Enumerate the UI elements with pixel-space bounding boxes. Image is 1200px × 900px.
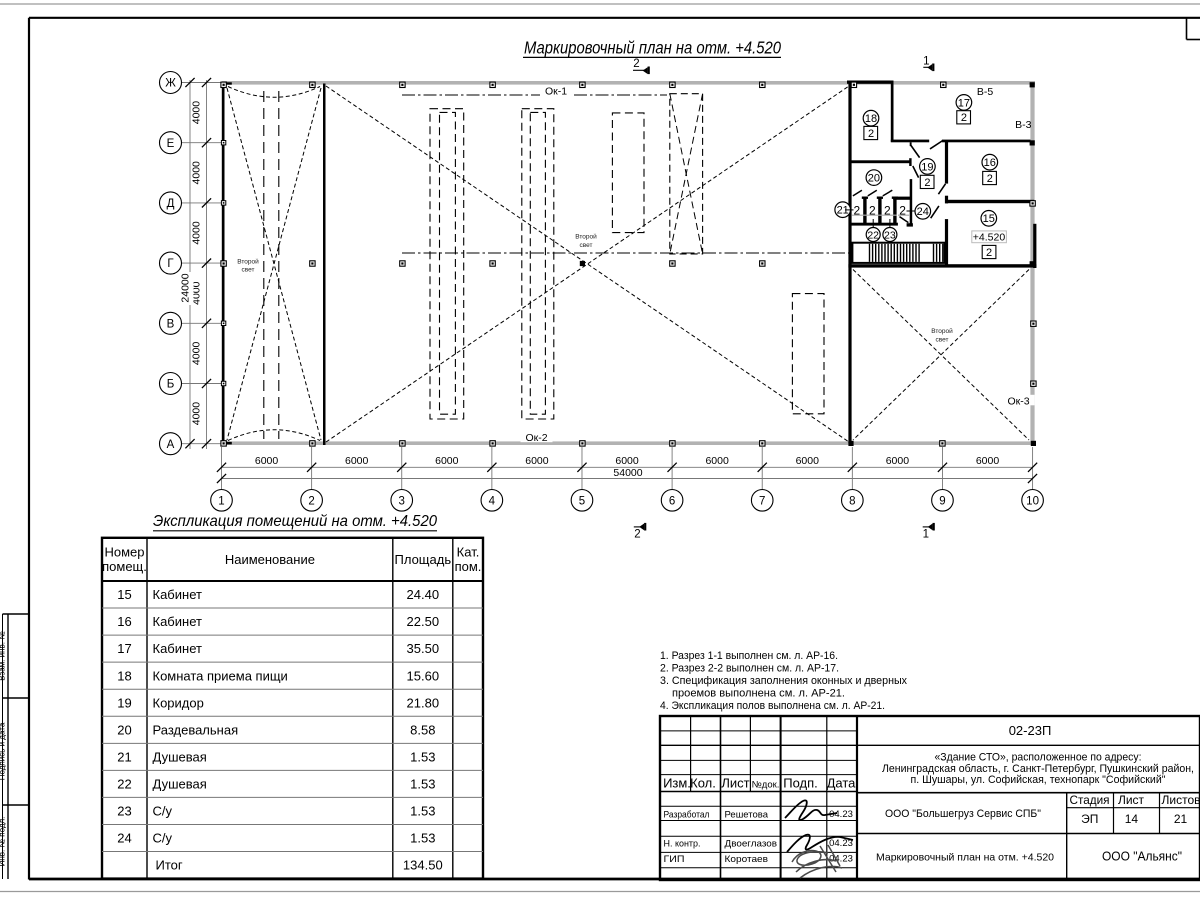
svg-text:15.60: 15.60 (407, 668, 440, 683)
svg-text:4000: 4000 (191, 161, 203, 185)
svg-text:+4.520: +4.520 (973, 231, 1006, 243)
svg-text:Раздевальная: Раздевальная (153, 722, 239, 737)
svg-text:9: 9 (939, 495, 945, 507)
svg-text:Листов: Листов (1162, 793, 1200, 807)
svg-text:свет: свет (579, 242, 592, 249)
svg-text:1. Разрез 1-1 выполнен см. л.: 1. Разрез 1-1 выполнен см. л. АР-16. (660, 650, 838, 662)
svg-text:Коротаев: Коротаев (725, 854, 769, 865)
svg-text:В: В (167, 318, 175, 330)
svg-text:Ок-3: Ок-3 (1007, 396, 1029, 408)
svg-text:4000: 4000 (191, 402, 203, 426)
svg-text:Стадия: Стадия (1070, 793, 1110, 807)
svg-text:Кабинет: Кабинет (153, 587, 202, 602)
svg-text:Дата: Дата (827, 776, 857, 791)
svg-text:2: 2 (634, 528, 640, 540)
svg-text:ООО "Большегруз Сервис СПБ": ООО "Большегруз Сервис СПБ" (885, 808, 1041, 820)
svg-text:Кат.: Кат. (457, 544, 480, 559)
svg-text:Наименование: Наименование (225, 552, 315, 567)
svg-text:2: 2 (868, 128, 874, 140)
svg-text:Душевая: Душевая (153, 749, 207, 764)
svg-text:Второй: Второй (575, 233, 597, 241)
svg-text:24: 24 (117, 831, 131, 846)
svg-text:ООО "Альянс": ООО "Альянс" (1102, 850, 1182, 864)
svg-text:Подпись и дата: Подпись и дата (0, 722, 7, 780)
svg-text:02-23П: 02-23П (1009, 723, 1052, 738)
svg-text:6000: 6000 (615, 455, 639, 467)
svg-text:1: 1 (923, 528, 929, 540)
svg-text:20: 20 (868, 173, 880, 185)
svg-text:20: 20 (117, 722, 131, 737)
svg-text:2: 2 (924, 177, 930, 189)
svg-text:1: 1 (923, 56, 929, 68)
svg-text:6000: 6000 (525, 455, 549, 467)
svg-text:Инв. № подл.: Инв. № подл. (0, 817, 7, 867)
svg-text:6000: 6000 (976, 455, 1000, 467)
svg-text:Подп.: Подп. (783, 776, 818, 791)
svg-text:22.50: 22.50 (407, 614, 440, 629)
svg-text:8.58: 8.58 (410, 722, 435, 737)
svg-text:2: 2 (961, 112, 967, 124)
svg-text:Коридор: Коридор (153, 695, 204, 710)
svg-text:Е: Е (167, 138, 175, 150)
svg-text:6000: 6000 (796, 455, 820, 467)
svg-text:6000: 6000 (705, 455, 729, 467)
svg-text:23: 23 (117, 804, 131, 819)
svg-text:16: 16 (984, 157, 996, 169)
svg-text:4. Экспликация полов выполнена: 4. Экспликация полов выполнена см. л. АР… (660, 700, 885, 712)
svg-text:Ленинградская область, г. Санк: Ленинградская область, г. Санкт-Петербур… (882, 763, 1194, 775)
svg-text:17: 17 (958, 97, 970, 109)
svg-text:24000: 24000 (180, 273, 192, 302)
svg-text:54000: 54000 (613, 467, 642, 479)
svg-text:Лист: Лист (721, 776, 749, 791)
svg-text:15: 15 (983, 213, 995, 225)
svg-text:Маркировочный план на отм. +4.: Маркировочный план на отм. +4.520 (524, 38, 781, 58)
svg-text:С/у: С/у (153, 831, 173, 846)
svg-text:пом.: пом. (455, 559, 482, 574)
svg-text:23: 23 (884, 229, 896, 241)
svg-text:Д: Д (167, 198, 175, 210)
svg-text:1.53: 1.53 (410, 777, 435, 792)
svg-text:2: 2 (987, 173, 993, 185)
svg-text:п. Шушары, ул. Софийская, техн: п. Шушары, ул. Софийская, технопарк "Соф… (911, 774, 1166, 786)
svg-text:1.53: 1.53 (410, 804, 435, 819)
svg-text:Двоеглазов: Двоеглазов (725, 839, 778, 850)
svg-text:ГИП: ГИП (664, 854, 685, 865)
svg-text:Маркировочный план на отм. +4.: Маркировочный план на отм. +4.520 (876, 852, 1054, 864)
svg-text:2: 2 (884, 203, 891, 217)
svg-text:2. Разрез 2-2 выполнен см. л.: 2. Разрез 2-2 выполнен см. л. АР-17. (660, 663, 839, 675)
svg-text:21.80: 21.80 (407, 695, 440, 710)
svg-text:19: 19 (117, 695, 131, 710)
svg-text:21: 21 (837, 205, 849, 217)
svg-text:18: 18 (865, 113, 877, 125)
svg-text:2: 2 (633, 58, 639, 70)
svg-text:22: 22 (867, 229, 879, 241)
svg-text:Итог: Итог (156, 858, 183, 873)
svg-text:1.53: 1.53 (410, 749, 435, 764)
svg-text:35.50: 35.50 (407, 641, 440, 656)
svg-text:6000: 6000 (345, 455, 369, 467)
svg-text:Ок-2: Ок-2 (525, 432, 547, 444)
svg-text:Изм.: Изм. (663, 776, 691, 791)
svg-text:1: 1 (218, 495, 224, 507)
svg-text:15: 15 (117, 587, 131, 602)
svg-text:16: 16 (117, 614, 131, 629)
svg-text:6000: 6000 (886, 455, 910, 467)
svg-text:22: 22 (117, 777, 131, 792)
svg-text:4: 4 (489, 495, 496, 507)
svg-text:24.40: 24.40 (407, 587, 440, 602)
svg-text:17: 17 (117, 641, 131, 656)
svg-text:24: 24 (917, 206, 929, 218)
svg-text:2: 2 (308, 495, 314, 507)
svg-text:Кабинет: Кабинет (153, 614, 202, 629)
svg-text:3. Спецификация заполнения око: 3. Спецификация заполнения оконных и две… (660, 675, 907, 687)
svg-text:19: 19 (921, 161, 933, 173)
svg-text:Площадь: Площадь (395, 552, 452, 567)
svg-text:4000: 4000 (191, 221, 203, 245)
svg-text:Взам. инв. №: Взам. инв. № (0, 631, 7, 681)
svg-text:4000: 4000 (191, 342, 203, 366)
svg-text:5: 5 (579, 495, 585, 507)
svg-text:3: 3 (399, 495, 405, 507)
svg-text:свет: свет (935, 337, 948, 344)
svg-text:2: 2 (869, 203, 876, 217)
svg-text:Кол.: Кол. (690, 776, 716, 791)
svg-text:2: 2 (853, 203, 860, 217)
svg-text:Ок-1: Ок-1 (545, 86, 567, 98)
svg-text:2: 2 (899, 203, 906, 217)
svg-text:Второй: Второй (931, 327, 953, 335)
svg-text:«Здание СТО», расположенное по: «Здание СТО», расположенное по адресу: (935, 752, 1142, 764)
svg-text:А: А (167, 439, 175, 451)
svg-text:Второй: Второй (237, 258, 259, 266)
svg-text:6000: 6000 (435, 455, 459, 467)
svg-text:Душевая: Душевая (153, 777, 207, 792)
svg-text:21: 21 (117, 749, 131, 764)
svg-text:В-5: В-5 (977, 86, 994, 98)
svg-text:Номер: Номер (104, 544, 144, 559)
svg-text:10: 10 (1026, 495, 1039, 507)
svg-text:Н. контр.: Н. контр. (664, 839, 701, 850)
svg-text:Разработал: Разработал (664, 809, 710, 820)
svg-text:свет: свет (241, 267, 254, 274)
svg-text:В-3: В-3 (1015, 119, 1032, 131)
svg-text:проемов выполнена см. л. АР-21: проемов выполнена см. л. АР-21. (672, 688, 845, 700)
svg-text:2: 2 (986, 247, 992, 259)
svg-text:7: 7 (759, 495, 765, 507)
svg-text:134.50: 134.50 (403, 858, 443, 873)
svg-text:21: 21 (1174, 812, 1188, 826)
svg-text:Кабинет: Кабинет (153, 641, 202, 656)
svg-text:Лист: Лист (1118, 793, 1145, 807)
svg-text:ЭП: ЭП (1081, 812, 1098, 826)
svg-text:С/у: С/у (153, 804, 173, 819)
svg-text:1.53: 1.53 (410, 831, 435, 846)
svg-text:№док.: №док. (752, 780, 780, 791)
svg-text:Комната приема пищи: Комната приема пищи (153, 668, 288, 683)
svg-text:14: 14 (1125, 812, 1139, 826)
svg-text:помещ.: помещ. (102, 559, 147, 574)
svg-text:Г: Г (167, 258, 174, 270)
svg-text:Экспликация помещений на отм.: Экспликация помещений на отм. +4.520 (153, 513, 437, 530)
svg-text:Б: Б (167, 379, 175, 391)
svg-text:04.23: 04.23 (829, 853, 853, 864)
svg-text:Решетова: Решетова (725, 809, 769, 820)
svg-text:4000: 4000 (191, 101, 203, 125)
svg-text:6000: 6000 (255, 455, 279, 467)
svg-text:Ж: Ж (165, 78, 176, 90)
svg-text:6: 6 (669, 495, 675, 507)
svg-text:8: 8 (849, 495, 855, 507)
svg-text:18: 18 (117, 668, 131, 683)
